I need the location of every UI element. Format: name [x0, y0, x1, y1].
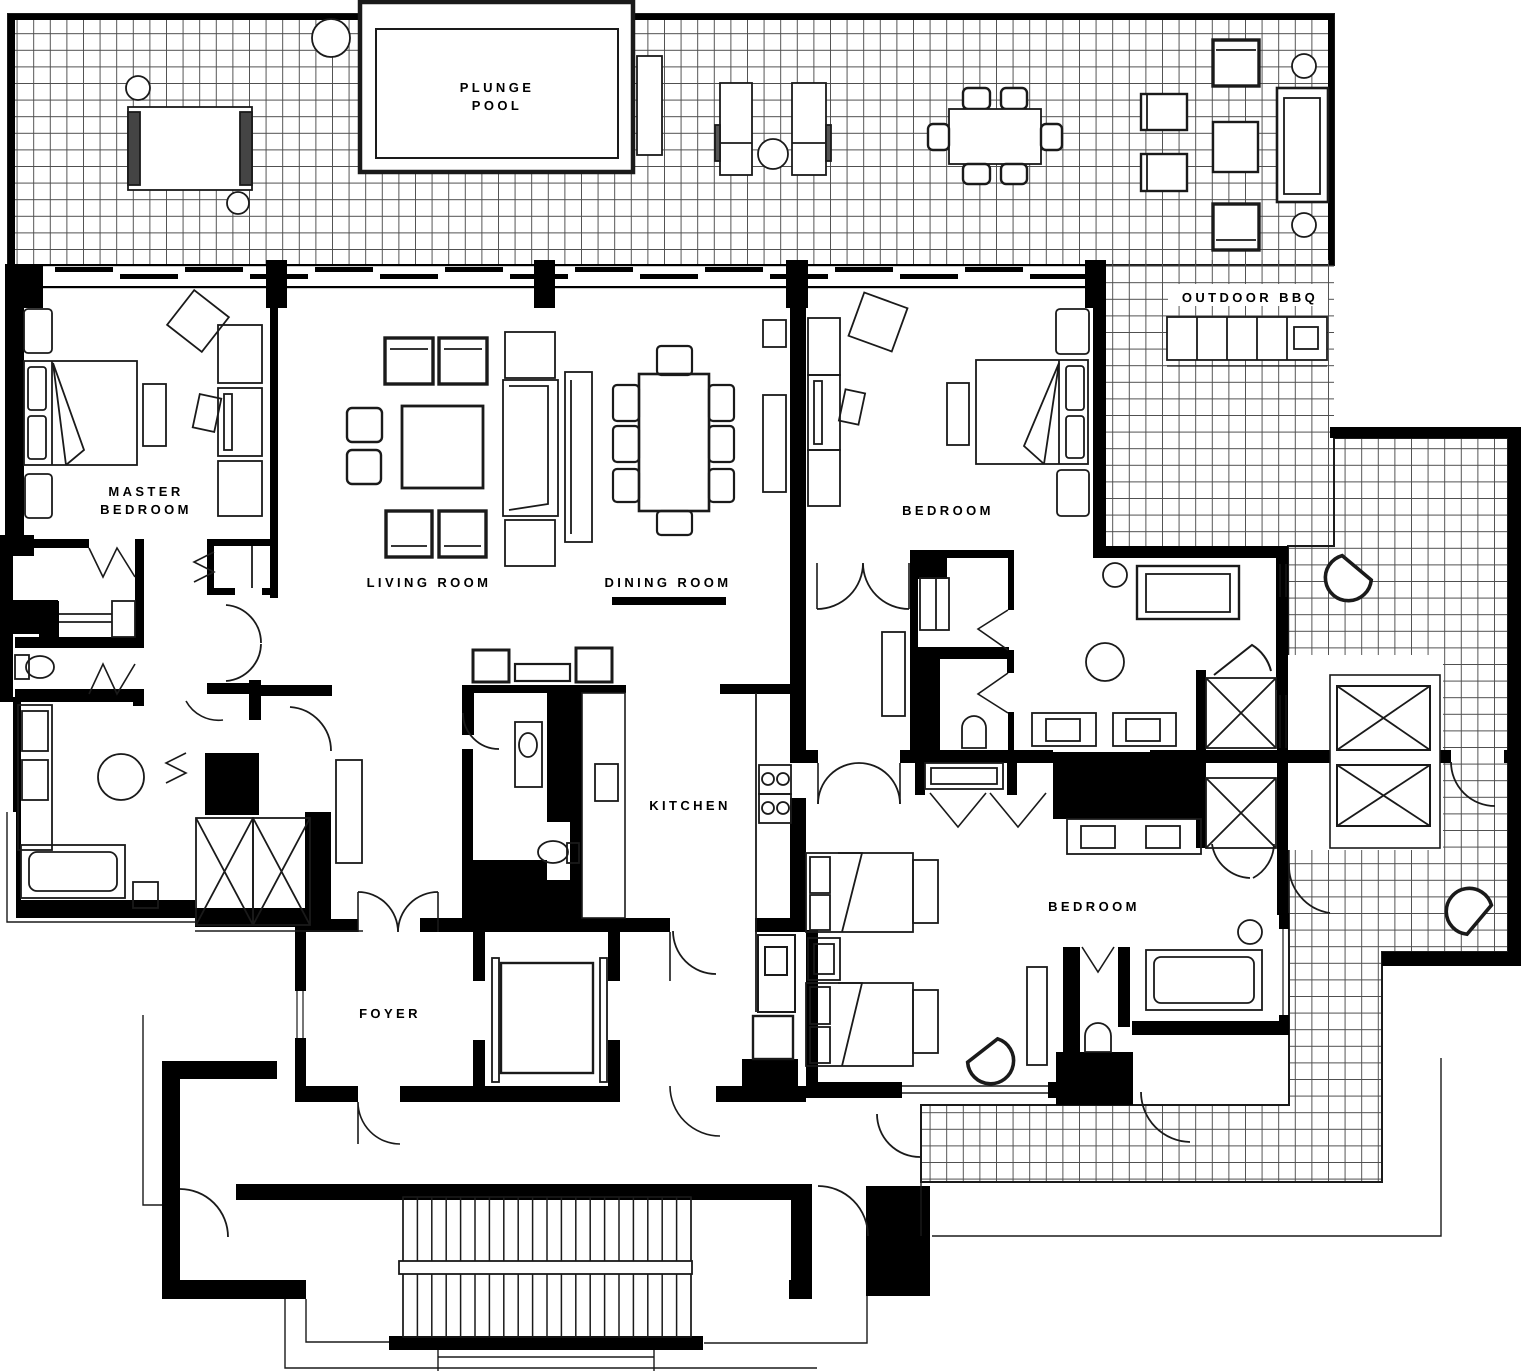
svg-text:LIVING ROOM: LIVING ROOM — [367, 575, 492, 590]
svg-text:BEDROOM: BEDROOM — [1048, 899, 1140, 914]
svg-text:FOYER: FOYER — [359, 1006, 421, 1021]
svg-text:BEDROOM: BEDROOM — [902, 503, 994, 518]
svg-text:MASTER: MASTER — [108, 484, 183, 499]
svg-text:POOL: POOL — [472, 98, 522, 113]
svg-text:BEDROOM: BEDROOM — [100, 502, 192, 517]
svg-text:PLUNGE: PLUNGE — [460, 80, 535, 95]
svg-text:OUTDOOR BBQ: OUTDOOR BBQ — [1182, 290, 1318, 305]
svg-text:KITCHEN: KITCHEN — [649, 798, 731, 813]
svg-text:DINING ROOM: DINING ROOM — [605, 575, 732, 590]
